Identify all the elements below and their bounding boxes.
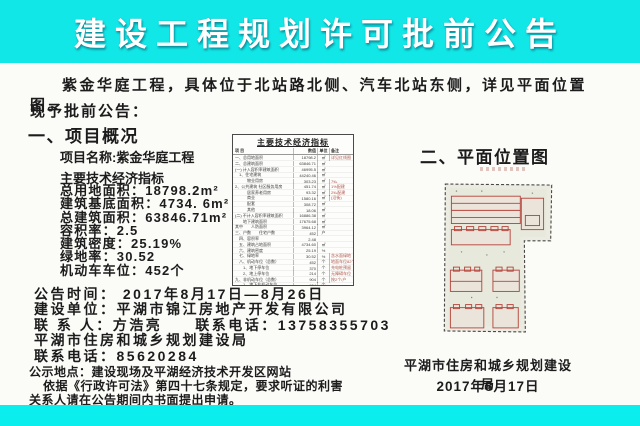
- table-cell-value: 308.72: [293, 202, 317, 207]
- table-cell-unit: %: [317, 254, 329, 259]
- table-header-value: 数值: [293, 148, 317, 154]
- signature-date: 2017年8月17日: [398, 375, 578, 395]
- map-caption-smudge: [480, 167, 526, 171]
- table-header-item: 项 目: [233, 148, 293, 154]
- table-cell-note: 按2个/户: [329, 277, 353, 283]
- table-cell-value: 25.19: [293, 248, 317, 253]
- table-cell-value: 2.48: [293, 237, 317, 242]
- poster-title: 建设工程规划许可批前公告: [74, 9, 566, 55]
- indicator-line: 总建筑面积：63846.71m²: [60, 211, 229, 224]
- section1-heading: 一、项目概况: [28, 122, 139, 147]
- table-cell-value: 370: [293, 266, 317, 271]
- indicator-line: 机动车车位：452个: [60, 264, 229, 277]
- table-cell-unit: ㎡: [317, 242, 329, 248]
- building-bottom-left: [450, 308, 483, 328]
- table-cell-value: 452: [293, 260, 317, 265]
- banner: 建设工程规划许可批前公告: [0, 0, 640, 63]
- building-topright: [521, 198, 543, 229]
- indicator-list: 总用地面积：18798.2m² 建筑基底面积：4734. 6m² 总建筑面积：6…: [60, 184, 229, 277]
- bottom-cyan-band: [0, 405, 640, 426]
- technical-indicators-table: 主要技术经济指标 项 目 数值 单位 备注 一、总用地面积 18798.2 ㎡ …: [232, 134, 354, 286]
- table-cell-value: 18.06: [293, 208, 317, 213]
- table-cell-note: 详见红线图: [329, 155, 353, 161]
- table-cell-value: 16886.38: [293, 213, 317, 218]
- indicator-line: 总用地面积：18798.2m²: [60, 184, 229, 197]
- building-mid-right: [493, 270, 519, 291]
- table-cell-note: (沿街): [329, 195, 353, 201]
- section2-heading: 二、平面位置图: [420, 143, 550, 168]
- table-cell-value: 303.23: [293, 179, 317, 184]
- table-cell-value: 452: [293, 231, 317, 236]
- table-cell-value: 30.52: [293, 254, 317, 259]
- table-cell-value: 63846.71: [293, 161, 317, 166]
- detail-line: 建设单位：平湖市锦江房地产开发有限公司: [34, 302, 391, 317]
- table-cell-unit: %: [317, 248, 329, 253]
- table-cell-value: 3964.12: [293, 225, 317, 230]
- announce-line: 现予批前公告：: [30, 100, 149, 121]
- table-cell-value: 18798.2: [293, 155, 317, 160]
- table-cell-value: 44240.46: [293, 173, 317, 178]
- table-cell-value: 904: [293, 277, 317, 282]
- detail-line: 公告时间： 2017年8月17日—8月26日: [34, 287, 391, 302]
- building-bottom-right: [493, 308, 518, 328]
- site-plan-map: [441, 181, 555, 336]
- table-cell-value: 93.32: [293, 190, 317, 195]
- announcement-poster: 建设工程规划许可批前公告 紫金华庭工程，具体位于北站路北侧、汽车北站东侧，详见平…: [0, 0, 640, 426]
- building-row2: [451, 230, 510, 245]
- table-cell-value: 4734.60: [293, 242, 317, 247]
- detail-line: 平湖市住房和城乡规划建设局: [34, 333, 391, 348]
- indicator-line: 绿地率：30.52: [60, 250, 229, 263]
- table-cell-unit: 户: [317, 230, 329, 236]
- detail-lines: 公告时间： 2017年8月17日—8月26日 建设单位：平湖市锦江房地产开发有限…: [34, 287, 391, 364]
- indicator-line: 容积率：2.5: [60, 224, 229, 237]
- detail-line: 联系电话：85620284: [34, 349, 391, 364]
- table-cell-value: 1580.16: [293, 196, 317, 201]
- table-header-note: 备注: [329, 148, 353, 154]
- table-header-unit: 单位: [317, 148, 329, 154]
- indicator-line: 建筑基底面积：4734. 6m²: [60, 197, 229, 210]
- table-title: 主要技术经济指标: [233, 135, 353, 148]
- table-cell-value: 17675.68: [293, 219, 317, 224]
- table-cell-value: 214: [293, 271, 317, 276]
- table-body: 一、总用地面积 18798.2 ㎡ 详见红线图 二、总建筑面积 63846.71…: [233, 155, 353, 286]
- table-cell-note: 7‰: [329, 179, 353, 184]
- indicator-line: 建筑密度：25.19%: [60, 237, 229, 250]
- table-cell-value: 46995.5: [293, 167, 317, 172]
- building-slab: [451, 196, 520, 223]
- table-cell-value: 451.74: [293, 184, 317, 189]
- project-name-line: 项目名称:紫金华庭工程: [60, 147, 194, 166]
- detail-line: 联 系 人：方浩亮 联系电话：13758355703: [34, 318, 391, 333]
- building-mid-left: [450, 270, 481, 291]
